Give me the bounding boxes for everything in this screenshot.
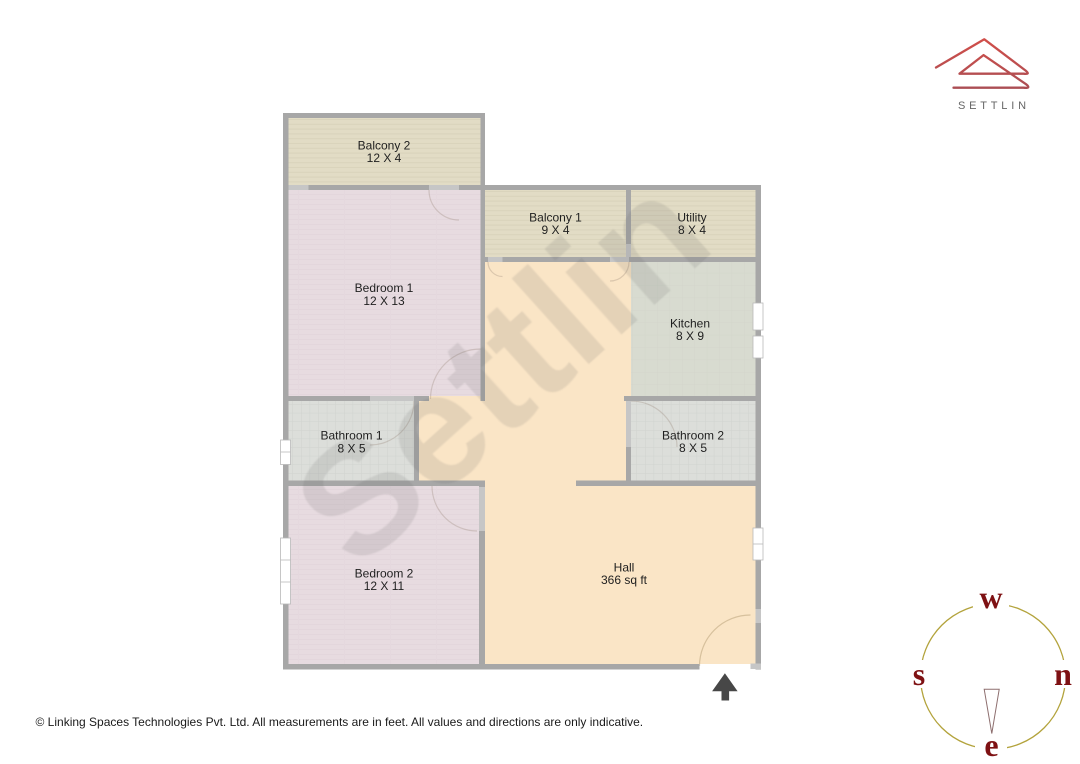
svg-text:n: n: [1054, 656, 1072, 692]
svg-text:12 X 4: 12 X 4: [367, 151, 402, 165]
svg-text:8 X 9: 8 X 9: [676, 329, 704, 343]
svg-text:12 X 13: 12 X 13: [363, 294, 405, 308]
svg-text:8 X 5: 8 X 5: [679, 441, 707, 455]
svg-text:366 sq ft: 366 sq ft: [601, 573, 648, 587]
svg-text:8 X 4: 8 X 4: [678, 223, 706, 237]
svg-text:12 X 11: 12 X 11: [364, 579, 405, 593]
svg-text:w: w: [979, 579, 1002, 615]
svg-text:© Linking Spaces Technologies: © Linking Spaces Technologies Pvt. Ltd. …: [36, 715, 644, 729]
svg-text:SETTLIN: SETTLIN: [958, 100, 1030, 112]
svg-text:s: s: [913, 656, 925, 692]
svg-text:8 X 5: 8 X 5: [337, 441, 365, 455]
svg-text:9 X 4: 9 X 4: [541, 223, 569, 237]
